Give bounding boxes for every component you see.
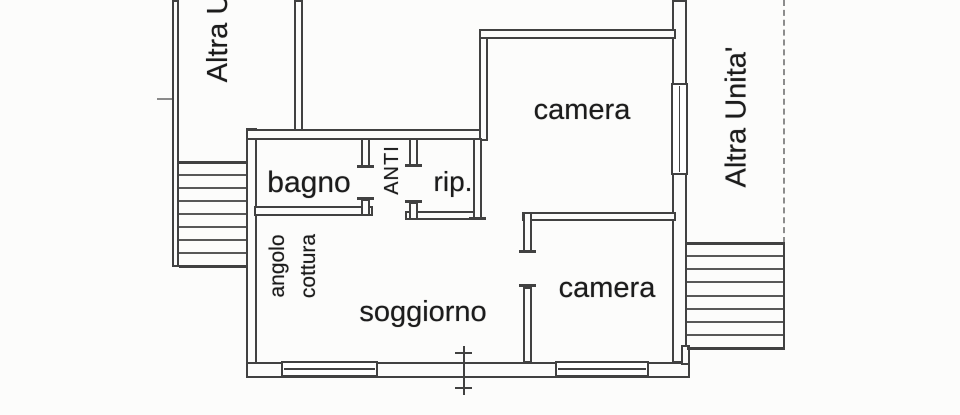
boundary-line-dashed	[783, 0, 785, 243]
wall-bagno-right-upper	[361, 138, 370, 168]
stair-tread	[687, 308, 783, 310]
stair-tread	[687, 281, 783, 283]
window-glass-line	[679, 86, 681, 172]
wall-bagno-right-lower	[361, 199, 370, 216]
stair-tread	[179, 239, 246, 241]
stair-tread	[179, 161, 246, 164]
stair-tread	[179, 265, 246, 268]
wall-apartment-left	[246, 128, 257, 378]
boundary-line-solid	[783, 242, 785, 350]
label-altra-unita-left: Altra U	[203, 0, 233, 108]
section-line-tick	[455, 387, 472, 389]
stair-tread	[687, 255, 783, 257]
room-label-bagno: bagno	[249, 167, 369, 199]
wall-fragment	[157, 98, 172, 100]
stairs-right	[687, 242, 783, 350]
door-cap	[519, 250, 536, 253]
room-label-cottura: cottura	[297, 224, 319, 308]
stair-tread	[687, 295, 783, 297]
room-label-soggiorno: soggiorno	[343, 297, 503, 327]
wall-rip-left-upper	[409, 138, 418, 167]
stairs-left	[179, 161, 246, 268]
wall-camera-top-left	[479, 29, 488, 141]
room-label-rip: rip.	[393, 167, 513, 196]
room-label-camera-bottom: camera	[537, 273, 677, 303]
wall-camera-top-bottom	[522, 212, 676, 221]
room-label-anti: ANTI	[381, 138, 403, 202]
stair-tread	[179, 187, 246, 189]
stair-tread	[179, 200, 246, 202]
stair-tread	[179, 174, 246, 176]
stair-tread	[687, 334, 783, 336]
stair-tread	[179, 252, 246, 254]
door-cap	[469, 217, 486, 220]
wall-rip-left-lower	[409, 202, 418, 220]
wall-left-outer	[172, 0, 179, 267]
wall-bagno-bottom	[254, 206, 373, 216]
stair-tread	[687, 347, 783, 350]
label-altra-unita-right: Altra Unita'	[722, 25, 752, 210]
window-camera-top	[671, 83, 688, 175]
wall-right-outer	[672, 0, 687, 363]
floor-plan: bagno rip. camera camera soggiorno ANTI …	[0, 0, 960, 415]
wall-divider-upper	[523, 212, 532, 253]
room-label-angolo: angolo	[266, 224, 288, 308]
room-label-camera-top: camera	[512, 95, 652, 125]
stair-tread	[687, 268, 783, 270]
door-cap	[519, 284, 536, 287]
window-glass-line	[284, 368, 375, 370]
wall-toproom-left	[294, 0, 303, 140]
wall-camera-top-top	[479, 29, 676, 39]
window-soggiorno	[281, 361, 378, 377]
stair-tread	[687, 242, 783, 245]
window-glass-line	[558, 368, 646, 370]
stair-tread	[179, 226, 246, 228]
door-cap	[405, 200, 422, 203]
section-line-tick	[455, 352, 472, 354]
stair-tread	[687, 321, 783, 323]
stair-tread	[179, 213, 246, 215]
wall-divider-lower	[523, 287, 532, 363]
window-camera-bottom	[555, 361, 649, 377]
